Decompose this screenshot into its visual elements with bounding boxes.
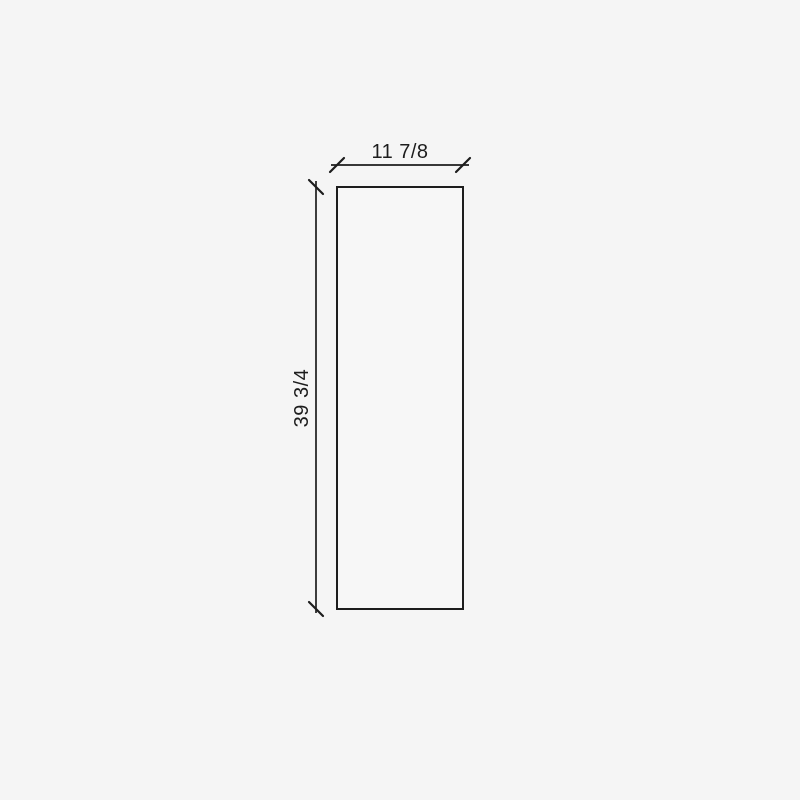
width-dimension: 11 7/8 bbox=[330, 141, 470, 172]
height-dimension-label: 39 3/4 bbox=[291, 369, 313, 428]
width-dimension-label: 11 7/8 bbox=[371, 141, 428, 163]
dimension-drawing: 11 7/8 39 3/4 bbox=[0, 0, 800, 800]
panel-outline bbox=[337, 187, 463, 609]
drawing-canvas: 11 7/8 39 3/4 bbox=[0, 0, 800, 800]
height-dimension: 39 3/4 bbox=[291, 180, 323, 616]
